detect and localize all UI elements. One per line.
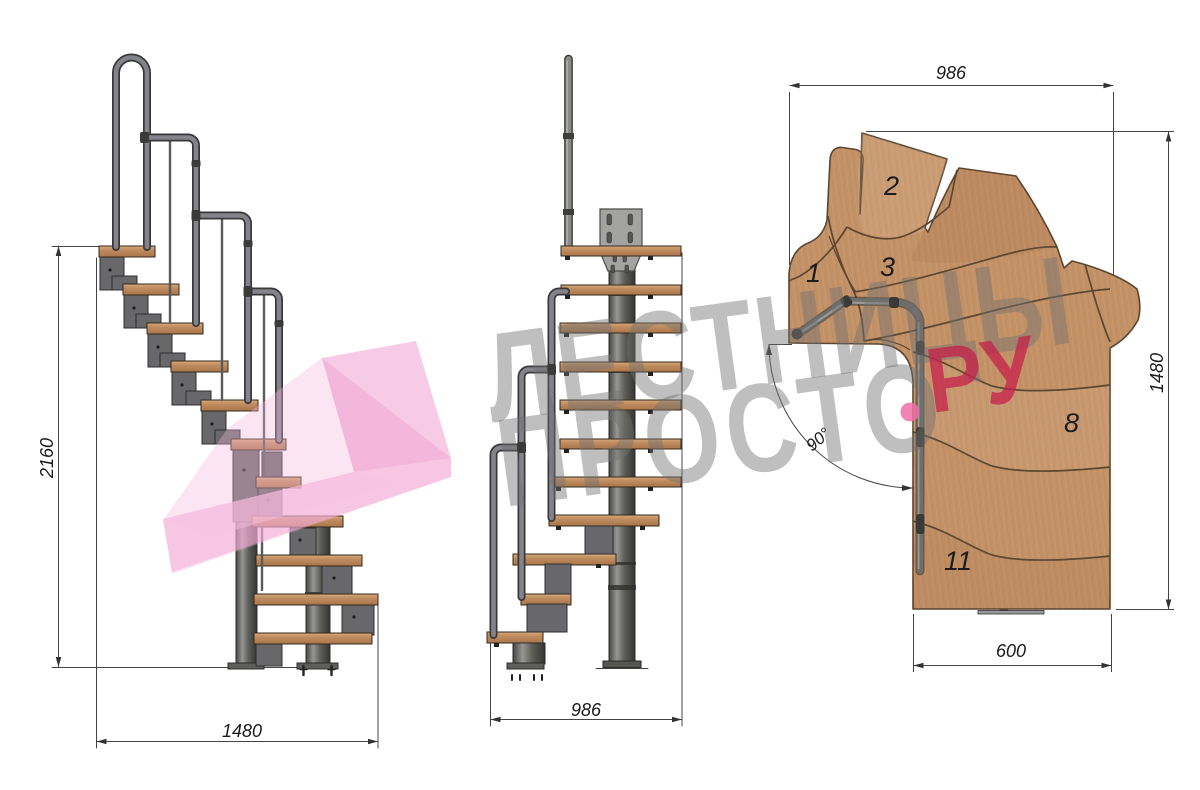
svg-text:РУ: РУ [920,316,1043,433]
svg-text:1480: 1480 [1147,353,1167,393]
svg-text:986: 986 [571,700,602,720]
svg-text:2160: 2160 [37,438,57,479]
svg-text:11: 11 [944,546,972,576]
svg-text:8: 8 [1064,408,1079,438]
svg-text:986: 986 [936,63,967,83]
svg-text:1480: 1480 [222,721,262,741]
svg-text:600: 600 [996,641,1026,661]
svg-text:2: 2 [883,171,899,201]
